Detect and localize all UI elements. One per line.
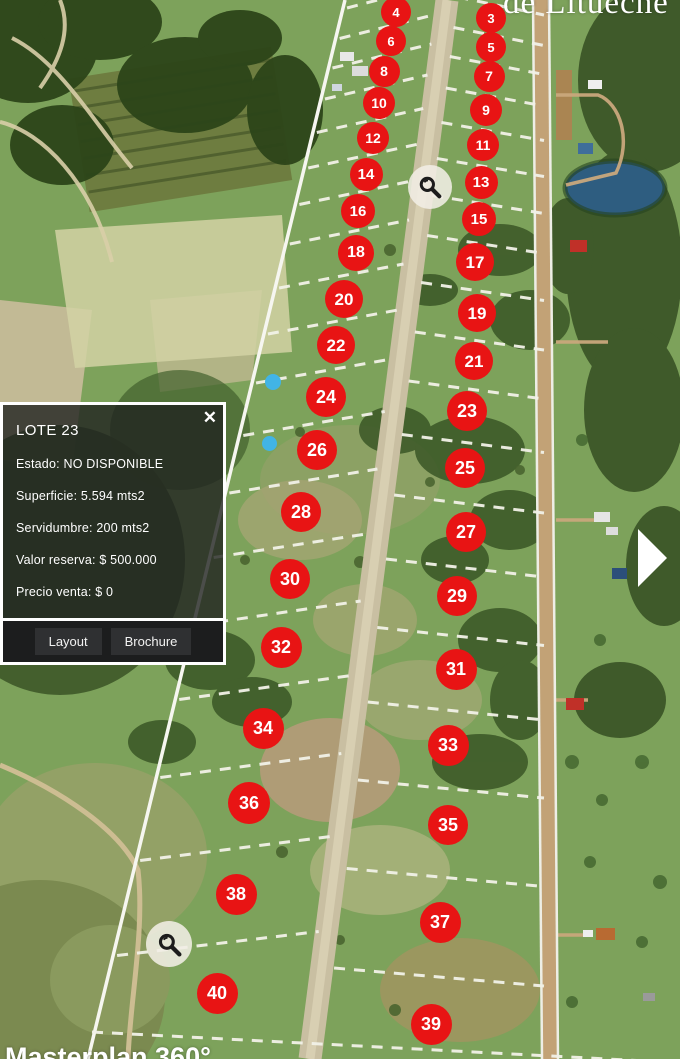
lot-marker-28[interactable]: 28 bbox=[281, 492, 321, 532]
parcel-map-view: 3579111315171921232527293133353739468101… bbox=[0, 0, 680, 1059]
lot-marker-5[interactable]: 5 bbox=[476, 32, 506, 62]
lot-info-popup: ✕ LOTE 23 Estado: NO DISPONIBLE Superfic… bbox=[0, 402, 226, 665]
lot-marker-14[interactable]: 14 bbox=[350, 158, 383, 191]
lot-marker-16[interactable]: 16 bbox=[341, 194, 375, 228]
lot-marker-33[interactable]: 33 bbox=[428, 725, 469, 766]
lot-marker-29[interactable]: 29 bbox=[437, 576, 477, 616]
lot-marker-37[interactable]: 37 bbox=[420, 902, 461, 943]
lot-marker-40[interactable]: 40 bbox=[197, 973, 238, 1014]
lot-marker-10[interactable]: 10 bbox=[363, 87, 395, 119]
lot-marker-7[interactable]: 7 bbox=[474, 61, 505, 92]
magnifier-icon-1[interactable] bbox=[408, 165, 452, 209]
popup-field-servidumbre: Servidumbre: 200 mts2 bbox=[16, 521, 223, 535]
magnifier-icon-2[interactable] bbox=[146, 921, 192, 967]
lot-marker-13[interactable]: 13 bbox=[465, 166, 498, 199]
layout-button[interactable]: Layout bbox=[35, 628, 102, 655]
lot-marker-30[interactable]: 30 bbox=[270, 559, 310, 599]
lot-marker-25[interactable]: 25 bbox=[445, 448, 485, 488]
lot-marker-19[interactable]: 19 bbox=[458, 294, 496, 332]
lot-marker-31[interactable]: 31 bbox=[436, 649, 477, 690]
lot-marker-17[interactable]: 17 bbox=[456, 243, 494, 281]
popup-field-precio-venta: Precio venta: $ 0 bbox=[16, 585, 223, 599]
lot-marker-8[interactable]: 8 bbox=[369, 56, 400, 87]
magnifier-glyph bbox=[155, 930, 184, 959]
lot-marker-15[interactable]: 15 bbox=[462, 202, 496, 236]
popup-title: LOTE 23 bbox=[16, 422, 223, 439]
masterplan-watermark: Masterplan 360° bbox=[5, 1042, 211, 1059]
lot-marker-20[interactable]: 20 bbox=[325, 280, 363, 318]
lot-marker-34[interactable]: 34 bbox=[243, 708, 284, 749]
close-icon[interactable]: ✕ bbox=[203, 409, 217, 426]
next-arrow-icon[interactable] bbox=[638, 529, 667, 587]
popup-field-superficie: Superficie: 5.594 mts2 bbox=[16, 489, 223, 503]
popup-footer: Layout Brochure bbox=[3, 618, 223, 662]
lot-marker-26[interactable]: 26 bbox=[297, 430, 337, 470]
blue-dot-marker-2[interactable] bbox=[262, 436, 277, 451]
lot-marker-39[interactable]: 39 bbox=[411, 1004, 452, 1045]
lot-marker-24[interactable]: 24 bbox=[306, 377, 346, 417]
brochure-button[interactable]: Brochure bbox=[111, 628, 192, 655]
lot-marker-38[interactable]: 38 bbox=[216, 874, 257, 915]
lot-marker-9[interactable]: 9 bbox=[470, 94, 502, 126]
lot-marker-32[interactable]: 32 bbox=[261, 627, 302, 668]
lot-marker-6[interactable]: 6 bbox=[376, 26, 406, 56]
lot-marker-3[interactable]: 3 bbox=[476, 3, 506, 33]
lot-marker-36[interactable]: 36 bbox=[228, 782, 270, 824]
lot-marker-23[interactable]: 23 bbox=[447, 391, 487, 431]
lot-marker-11[interactable]: 11 bbox=[467, 129, 499, 161]
lot-marker-22[interactable]: 22 bbox=[317, 326, 355, 364]
popup-field-estado: Estado: NO DISPONIBLE bbox=[16, 457, 223, 471]
project-title-watermark: de Litueche bbox=[503, 0, 669, 22]
lot-marker-27[interactable]: 27 bbox=[446, 512, 486, 552]
lot-marker-18[interactable]: 18 bbox=[338, 235, 374, 271]
popup-field-valor-reserva: Valor reserva: $ 500.000 bbox=[16, 553, 223, 567]
lot-marker-21[interactable]: 21 bbox=[455, 342, 493, 380]
lot-marker-12[interactable]: 12 bbox=[357, 122, 389, 154]
blue-dot-marker-1[interactable] bbox=[265, 374, 281, 390]
lot-marker-35[interactable]: 35 bbox=[428, 805, 468, 845]
magnifier-glyph bbox=[416, 173, 443, 200]
